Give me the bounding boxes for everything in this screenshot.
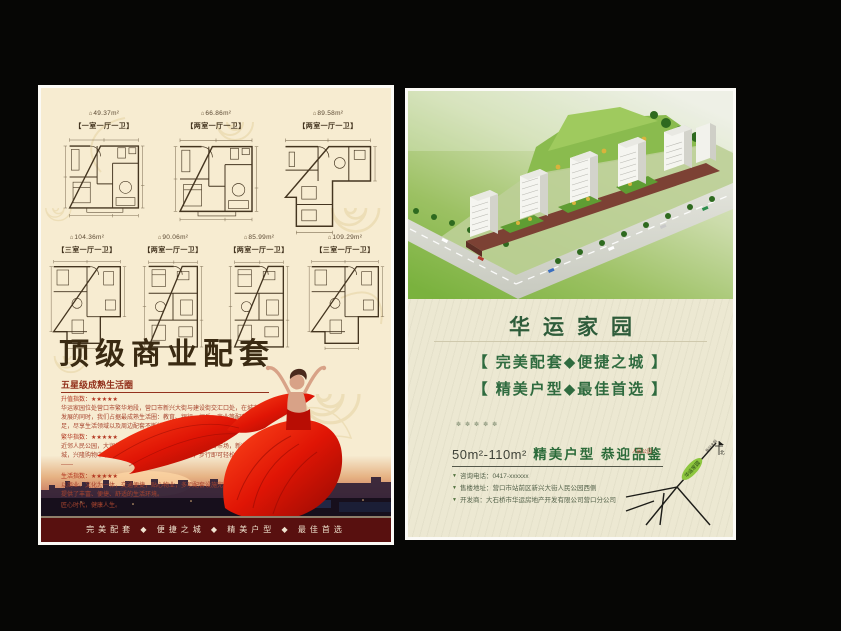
plan-area: 90.06m² bbox=[162, 234, 188, 241]
decor-asterisks: ✽✽✽✽✽ bbox=[456, 421, 501, 428]
floor-plan-cell: ⌂66.86m² 【两室一厅一卫】 bbox=[163, 102, 269, 238]
triangle-bullet-icon: ▼ bbox=[452, 473, 457, 479]
contact-phone: ▼咨询电话：0417-xxxxxx bbox=[452, 471, 616, 483]
plan-type: 【三室一厅一卫】 bbox=[47, 245, 127, 255]
plan-marker-icon: ⌂ bbox=[70, 235, 74, 241]
plan-type: 【两室一厅一卫】 bbox=[219, 245, 299, 255]
plan-marker-icon: ⌂ bbox=[244, 235, 248, 241]
flyer-left-page: ⌂49.37m² 【一室一厅一卫】 ⌂66.86m² 【两室一厅一卫】 ⌂89.… bbox=[38, 85, 394, 545]
left-footer-text: 完美配套 ◆ 便捷之城 ◆ 精美户型 ◆ 最佳首选 bbox=[86, 525, 346, 534]
floor-plan-cell: ⌂89.58m² 【两室一厅一卫】 bbox=[275, 102, 381, 238]
slogan-line-2: 【 精美户型◆最佳首选 】 bbox=[408, 378, 733, 399]
floor-plan-cell: ⌂109.29m² 【三室一厅一卫】 bbox=[305, 226, 385, 352]
plan-type: 【两室一厅一卫】 bbox=[163, 121, 269, 131]
floor-plan-row-2: ⌂104.36m² 【三室一厅一卫】 ⌂90.06m² 【两室一厅一卫】 ⌂85… bbox=[47, 226, 385, 352]
floor-plan-cell: ⌂49.37m² 【一室一厅一卫】 bbox=[51, 102, 157, 238]
triangle-bullet-icon: ▼ bbox=[452, 497, 457, 503]
red-dress-dancer-photo bbox=[77, 360, 391, 520]
right-paper: 华运家园 【 完美配套◆便捷之城 】 【 精美户型◆最佳首选 】 ✽✽✽✽✽ 5… bbox=[408, 91, 733, 537]
contact-address: ▼售楼地址：营口市站前区新兴大街人民公园西侧 bbox=[452, 483, 616, 495]
floor-plan-row-1: ⌂49.37m² 【一室一厅一卫】 ⌂66.86m² 【两室一厅一卫】 ⌂89.… bbox=[51, 102, 381, 238]
plan-marker-icon: ⌂ bbox=[201, 111, 205, 117]
left-paper: ⌂49.37m² 【一室一厅一卫】 ⌂66.86m² 【两室一厅一卫】 ⌂89.… bbox=[41, 88, 391, 542]
floor-plan-drawing bbox=[60, 134, 148, 220]
offer-area-range: 50m²-110m² bbox=[452, 447, 527, 462]
plan-marker-icon: ⌂ bbox=[89, 111, 93, 117]
floor-plan-drawing bbox=[305, 258, 385, 352]
floor-plan-cell: ⌂90.06m² 【两室一厅一卫】 bbox=[133, 226, 213, 352]
divider-rule bbox=[434, 341, 707, 342]
plan-area: 104.36m² bbox=[74, 234, 104, 241]
floor-plan-drawing bbox=[278, 134, 378, 238]
plan-type: 【两室一厅一卫】 bbox=[275, 121, 381, 131]
slogan-line-1: 【 完美配套◆便捷之城 】 bbox=[408, 351, 733, 372]
plan-type: 【两室一厅一卫】 bbox=[133, 245, 213, 255]
contact-developer: ▼开发商：大石桥市华运房地产开发有限公司营口分公司 bbox=[452, 495, 616, 507]
floor-plan-cell: ⌂85.99m² 【两室一厅一卫】 bbox=[219, 226, 299, 352]
triangle-bullet-icon: ▼ bbox=[452, 485, 457, 491]
plan-type: 【三室一厅一卫】 bbox=[305, 245, 385, 255]
svg-text:北: 北 bbox=[720, 449, 725, 456]
flyer-right-page: 华运家园 【 完美配套◆便捷之城 】 【 精美户型◆最佳首选 】 ✽✽✽✽✽ 5… bbox=[405, 88, 736, 540]
plan-area: 49.37m² bbox=[93, 110, 119, 117]
location-map: 华运家园 新兴大街 人民公园 北 bbox=[620, 437, 726, 529]
plan-area: 66.86m² bbox=[205, 110, 231, 117]
left-footer-bar: 完美配套 ◆ 便捷之城 ◆ 精美户型 ◆ 最佳首选 bbox=[41, 516, 391, 542]
plan-area: 109.29m² bbox=[332, 234, 362, 241]
plan-marker-icon: ⌂ bbox=[313, 111, 317, 117]
plan-type: 【一室一厅一卫】 bbox=[51, 121, 157, 131]
plan-area: 85.99m² bbox=[248, 234, 274, 241]
floor-plan-cell: ⌂104.36m² 【三室一厅一卫】 bbox=[47, 226, 127, 352]
map-park-label: 人民公园 bbox=[632, 449, 652, 455]
floor-plan-drawing bbox=[170, 134, 262, 224]
contact-block: ▼咨询电话：0417-xxxxxx ▼售楼地址：营口市站前区新兴大街人民公园西侧… bbox=[452, 471, 616, 507]
plan-marker-icon: ⌂ bbox=[158, 235, 162, 241]
project-name: 华运家园 bbox=[408, 311, 733, 341]
plan-area: 89.58m² bbox=[317, 110, 343, 117]
aerial-rendering-photo bbox=[408, 91, 733, 299]
plan-marker-icon: ⌂ bbox=[328, 235, 332, 241]
